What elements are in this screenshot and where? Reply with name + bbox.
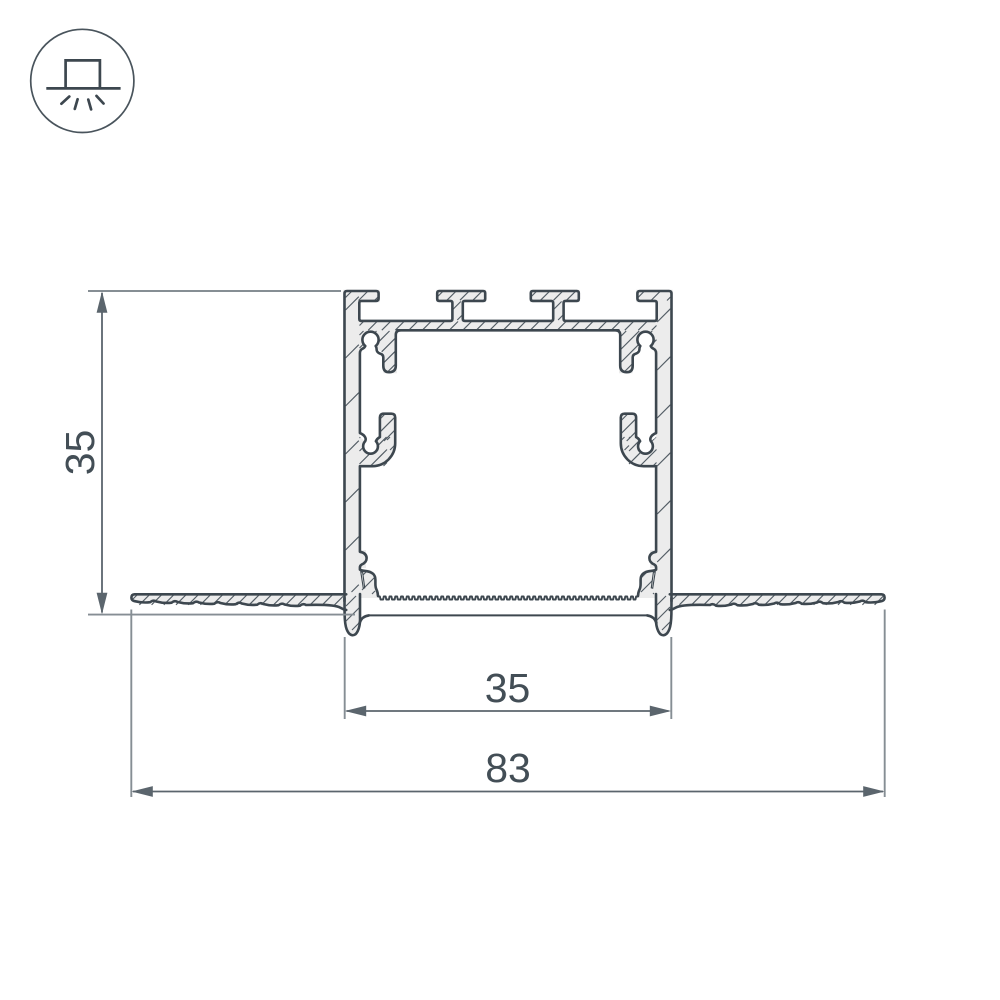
svg-text:83: 83 [485, 745, 531, 791]
svg-text:35: 35 [57, 430, 103, 476]
svg-text:35: 35 [485, 665, 531, 711]
